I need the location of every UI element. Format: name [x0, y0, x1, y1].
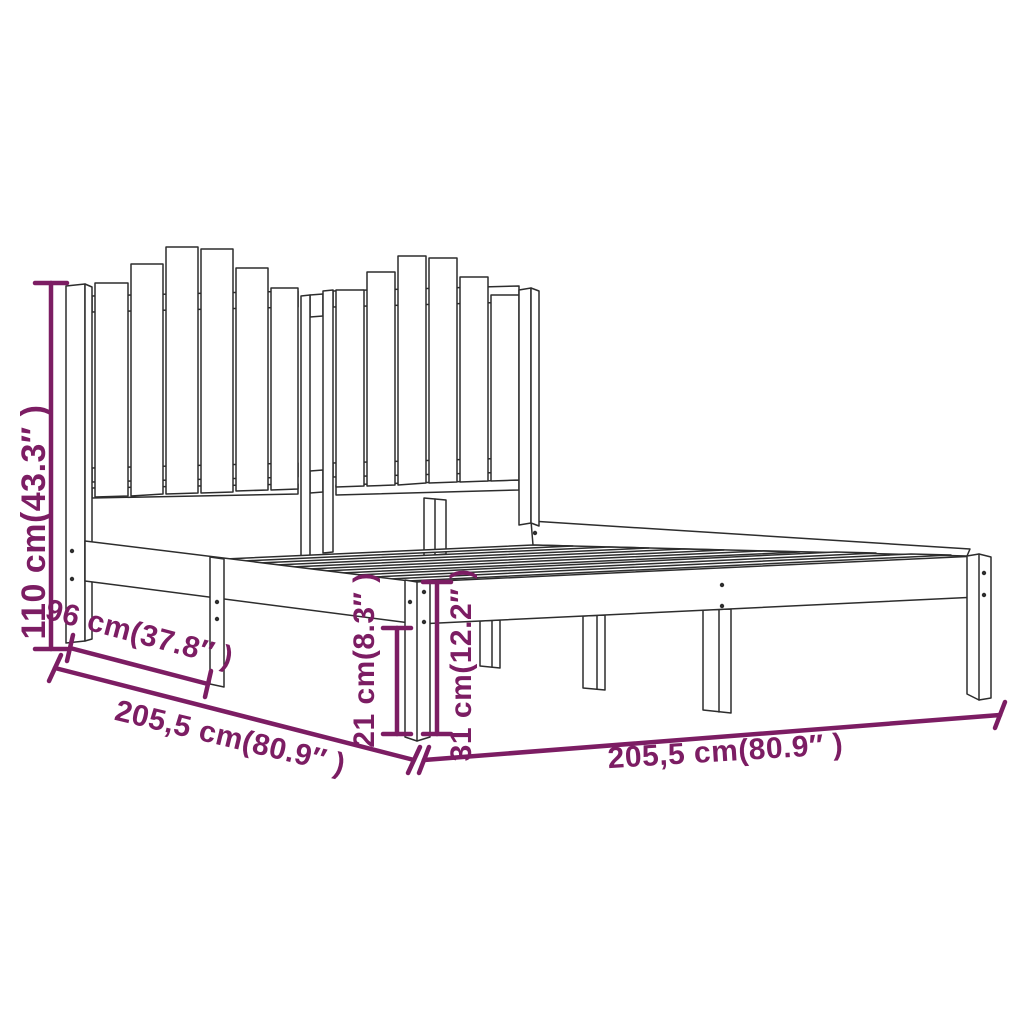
headboard-slat [131, 264, 163, 496]
diagram-canvas: 110 cm(43.3″ ) 96 cm(37.8″ ) 205,5 cm(80… [0, 0, 1024, 1024]
headboard-post-middle [323, 290, 333, 553]
dimension-headboard-height: 110 cm(43.3″ ) [15, 283, 67, 649]
bed-frame-dimension-diagram: 110 cm(43.3″ ) 96 cm(37.8″ ) 205,5 cm(80… [0, 0, 1024, 1024]
support-leg [703, 609, 731, 713]
headboard-slat [398, 256, 426, 485]
headboard-slat [429, 258, 457, 483]
headboard-post-left-side [85, 284, 92, 641]
headboard-slat [95, 283, 128, 497]
headboard-post-right [519, 288, 531, 525]
headboard-slat [236, 268, 268, 491]
dimension-side-section: 96 cm(37.8″ ) [42, 593, 237, 697]
rear-center-leg [424, 498, 446, 556]
headboard-slat [201, 249, 233, 493]
headboard-slat-group-left [95, 247, 298, 497]
headboard-post-left [66, 284, 85, 643]
dimension-label-side-length: 205,5 cm(80.9″ ) [112, 694, 349, 781]
headboard-slat [166, 247, 198, 494]
dimension-label-base-height: 31 cm(12.2″ ) [445, 569, 478, 762]
headboard-post-middle [301, 295, 310, 557]
headboard-slat [336, 290, 364, 487]
support-leg [480, 620, 500, 668]
support-leg [583, 615, 605, 690]
headboard-slat [460, 277, 488, 482]
dimension-front-length: 205,5 cm(80.9″ ) [419, 702, 1005, 775]
dimension-label-leg-clearance: 21 cm(8.3″ ) [348, 572, 381, 747]
dimension-label-front-length: 205,5 cm(80.9″ ) [607, 728, 844, 775]
headboard-slat [271, 288, 298, 490]
headboard-post-right-side [531, 288, 539, 526]
headboard-slat [367, 272, 395, 486]
inner-support-legs [480, 609, 731, 713]
headboard-slat [491, 295, 519, 481]
